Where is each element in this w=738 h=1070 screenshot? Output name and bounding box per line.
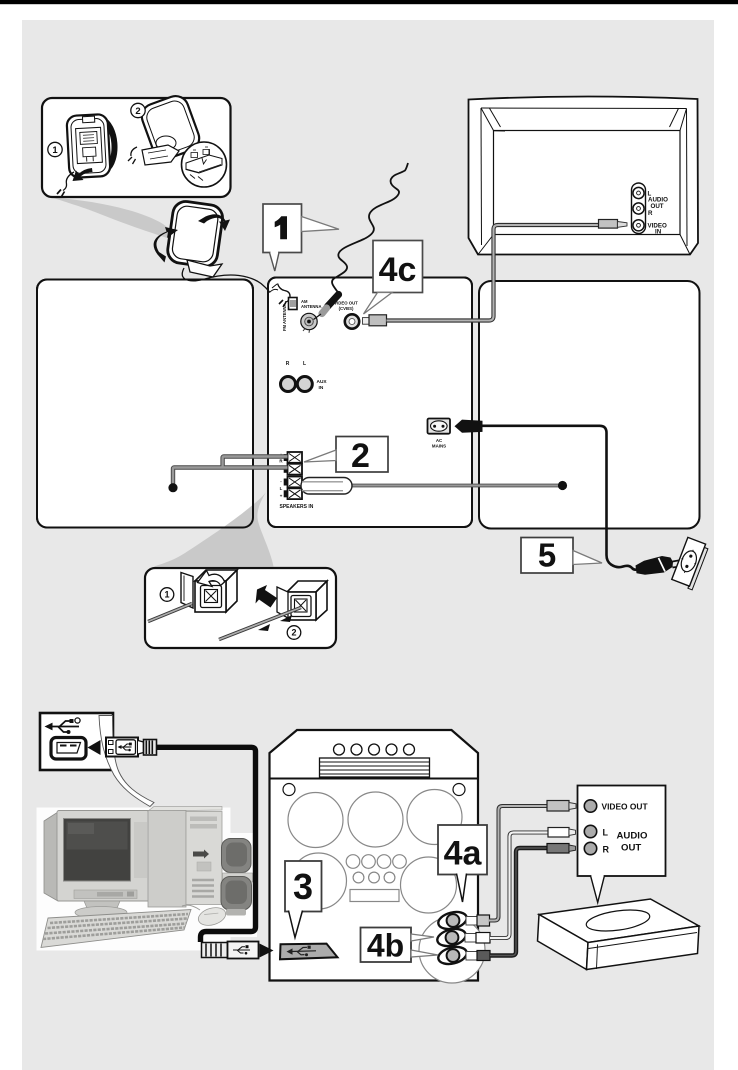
svg-text:AUX: AUX [317, 379, 328, 385]
svg-text:4b: 4b [367, 928, 404, 964]
svg-text:AC: AC [436, 438, 443, 443]
svg-text:L: L [280, 486, 283, 491]
svg-text:1: 1 [164, 590, 169, 600]
svg-text:OUT: OUT [621, 843, 641, 854]
svg-text:VIDEO OUT: VIDEO OUT [334, 301, 358, 306]
svg-text:L: L [303, 361, 306, 367]
svg-text:IN: IN [655, 229, 662, 236]
svg-text:R: R [648, 210, 653, 217]
svg-text:IN: IN [319, 385, 324, 391]
svg-text:2: 2 [291, 628, 296, 638]
svg-text:1: 1 [52, 145, 58, 156]
svg-text:MAINS: MAINS [432, 443, 446, 448]
svg-text:VIDEO OUT: VIDEO OUT [602, 801, 649, 811]
svg-text:+: + [280, 494, 283, 499]
svg-text:3: 3 [293, 866, 313, 907]
svg-text:R: R [286, 361, 290, 367]
svg-text:5: 5 [538, 537, 556, 574]
svg-text:(CVBS): (CVBS) [339, 306, 354, 311]
svg-text:R: R [603, 844, 610, 854]
svg-text:FM ANTENNA: FM ANTENNA [282, 303, 287, 331]
svg-text:4c: 4c [379, 251, 417, 289]
svg-text:L: L [603, 827, 609, 837]
svg-text:4a: 4a [444, 835, 483, 873]
svg-text:AUDIO: AUDIO [617, 831, 648, 842]
svg-text:2: 2 [351, 437, 370, 475]
svg-text:OUT: OUT [651, 203, 664, 210]
svg-text:ANTENNA: ANTENNA [301, 304, 321, 309]
svg-text:SPEAKERS IN: SPEAKERS IN [280, 504, 314, 510]
svg-text:2: 2 [135, 106, 140, 117]
